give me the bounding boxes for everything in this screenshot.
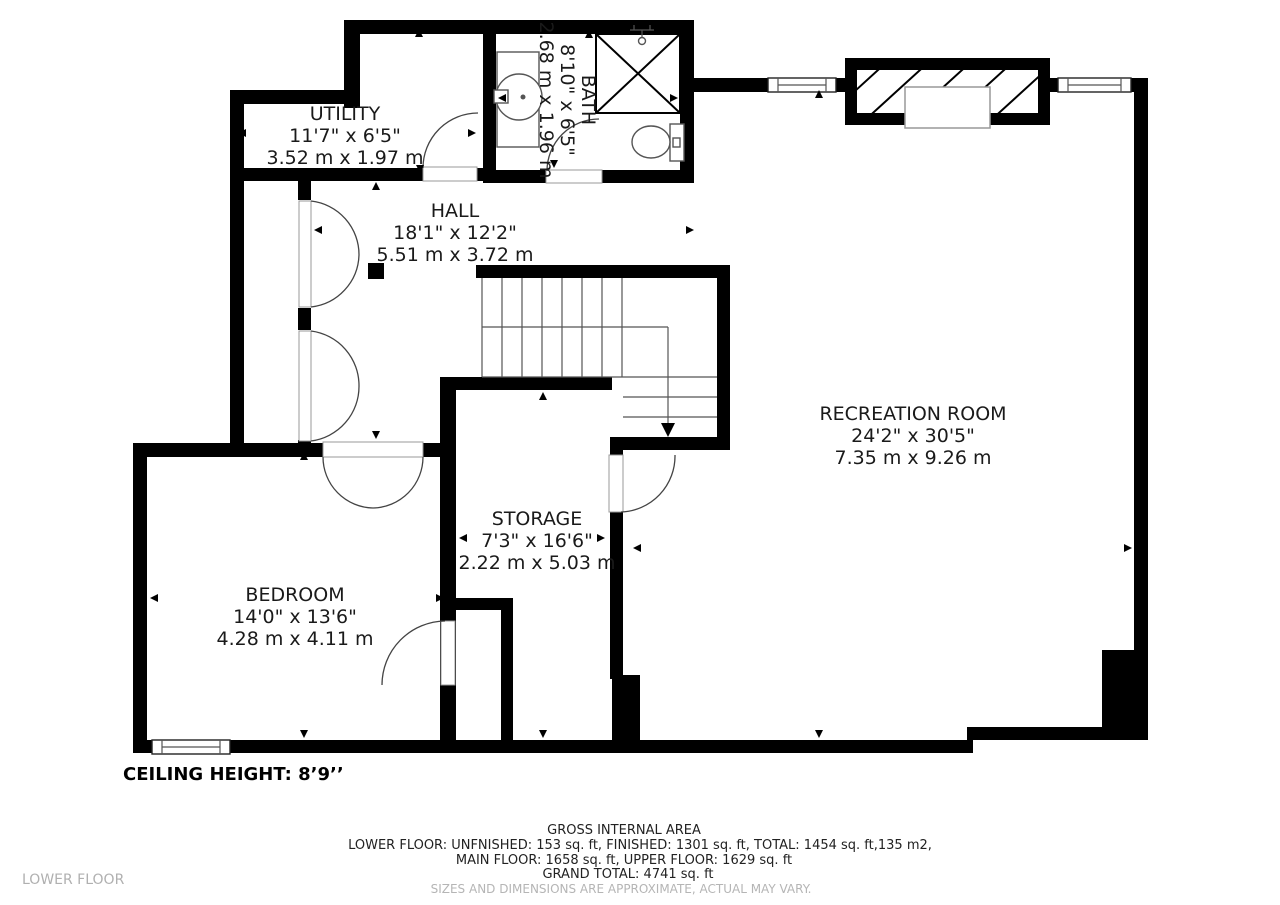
down-arrow-icon <box>661 423 675 437</box>
wall <box>230 90 356 104</box>
wall <box>1134 78 1148 656</box>
wall <box>440 377 456 753</box>
closet-doors-lower <box>299 331 359 441</box>
door-bedroom-double <box>323 442 423 508</box>
closet-doors-upper <box>299 201 359 307</box>
wall <box>230 168 423 181</box>
wall <box>133 443 147 753</box>
wall <box>717 265 730 450</box>
room-dim-imperial: 7'3" x 16'6" <box>481 530 593 552</box>
room-label-utility: UTILITY <box>310 103 381 125</box>
shower-icon <box>596 25 680 113</box>
wall <box>610 512 623 679</box>
footer-disclaimer: SIZES AND DIMENSIONS ARE APPROXIMATE, AC… <box>431 882 812 896</box>
wall <box>601 170 694 183</box>
marker-left <box>459 534 467 542</box>
room-dim-metric: 2.22 m x 5.03 m <box>458 552 615 574</box>
wall <box>133 443 323 457</box>
wall <box>501 598 513 743</box>
marker-down <box>300 730 308 738</box>
room-dim-imperial: 11'7" x 6'5" <box>289 125 401 147</box>
footer-title: GROSS INTERNAL AREA <box>547 823 701 838</box>
room-dim-metric: 7.35 m x 9.26 m <box>834 447 991 469</box>
floor-plan-page: UTILITY 11'7" x 6'5" 3.52 m x 1.97 m BAT… <box>0 0 1280 905</box>
room-dim-metric: 4.28 m x 4.11 m <box>216 628 373 650</box>
wall <box>610 437 730 450</box>
door-storage <box>609 455 675 512</box>
wall <box>967 727 1148 740</box>
room-label-bath: BATH <box>577 75 599 125</box>
room-label-storage: STORAGE <box>492 508 582 530</box>
marker-left <box>150 594 158 602</box>
window <box>152 740 230 754</box>
marker-right <box>597 534 605 542</box>
window <box>768 78 836 92</box>
room-dim-metric: 3.52 m x 1.97 m <box>266 147 423 169</box>
toilet-icon <box>632 124 684 161</box>
wall <box>476 265 730 278</box>
room-label-bedroom: BEDROOM <box>245 584 344 606</box>
wall <box>680 78 770 92</box>
footer-line3: GRAND TOTAL: 4741 sq. ft <box>542 867 713 882</box>
fireplace-insert <box>905 87 990 128</box>
wall <box>230 90 244 457</box>
floor-label: LOWER FLOOR <box>22 872 125 888</box>
room-label-recreation: RECREATION ROOM <box>819 403 1006 425</box>
door-bedroom-closet <box>382 621 455 685</box>
marker-left <box>633 544 641 552</box>
wall <box>612 675 640 743</box>
marker-right <box>686 226 694 234</box>
marker-down <box>372 431 380 439</box>
wall <box>440 377 612 390</box>
wall <box>1102 650 1148 740</box>
room-dim-imperial: 18'1" x 12'2" <box>393 222 517 244</box>
marker-right <box>670 94 678 102</box>
footer: GROSS INTERNAL AREA LOWER FLOOR: UNFNISH… <box>348 823 932 896</box>
stairs <box>482 278 717 437</box>
footer-line2: MAIN FLOOR: 1658 sq. ft, UPPER FLOOR: 16… <box>456 853 792 868</box>
marker-up <box>372 182 380 190</box>
marker-left <box>314 226 322 234</box>
marker-down <box>539 730 547 738</box>
room-dim-metric: 2.68 m x 1.96 m <box>535 21 557 178</box>
ceiling-height-note: CEILING HEIGHT: 8’9’’ <box>123 764 344 785</box>
room-dim-imperial: 14'0" x 13'6" <box>233 606 357 628</box>
marker-down <box>815 730 823 738</box>
marker-right <box>1124 544 1132 552</box>
room-dim-imperial: 8'10" x 6'5" <box>556 44 578 156</box>
floor-plan-drawing: UTILITY 11'7" x 6'5" 3.52 m x 1.97 m BAT… <box>0 0 1280 905</box>
window <box>1058 78 1131 92</box>
door-utility <box>423 113 478 181</box>
room-label-hall: HALL <box>431 200 480 222</box>
marker-right <box>468 129 476 137</box>
footer-line1: LOWER FLOOR: UNFNISHED: 153 sq. ft, FINI… <box>348 838 932 853</box>
wall <box>298 308 311 330</box>
marker-up <box>539 392 547 400</box>
wall <box>610 437 623 457</box>
room-dim-metric: 5.51 m x 3.72 m <box>376 244 533 266</box>
room-dim-imperial: 24'2" x 30'5" <box>851 425 975 447</box>
wall <box>133 740 973 753</box>
